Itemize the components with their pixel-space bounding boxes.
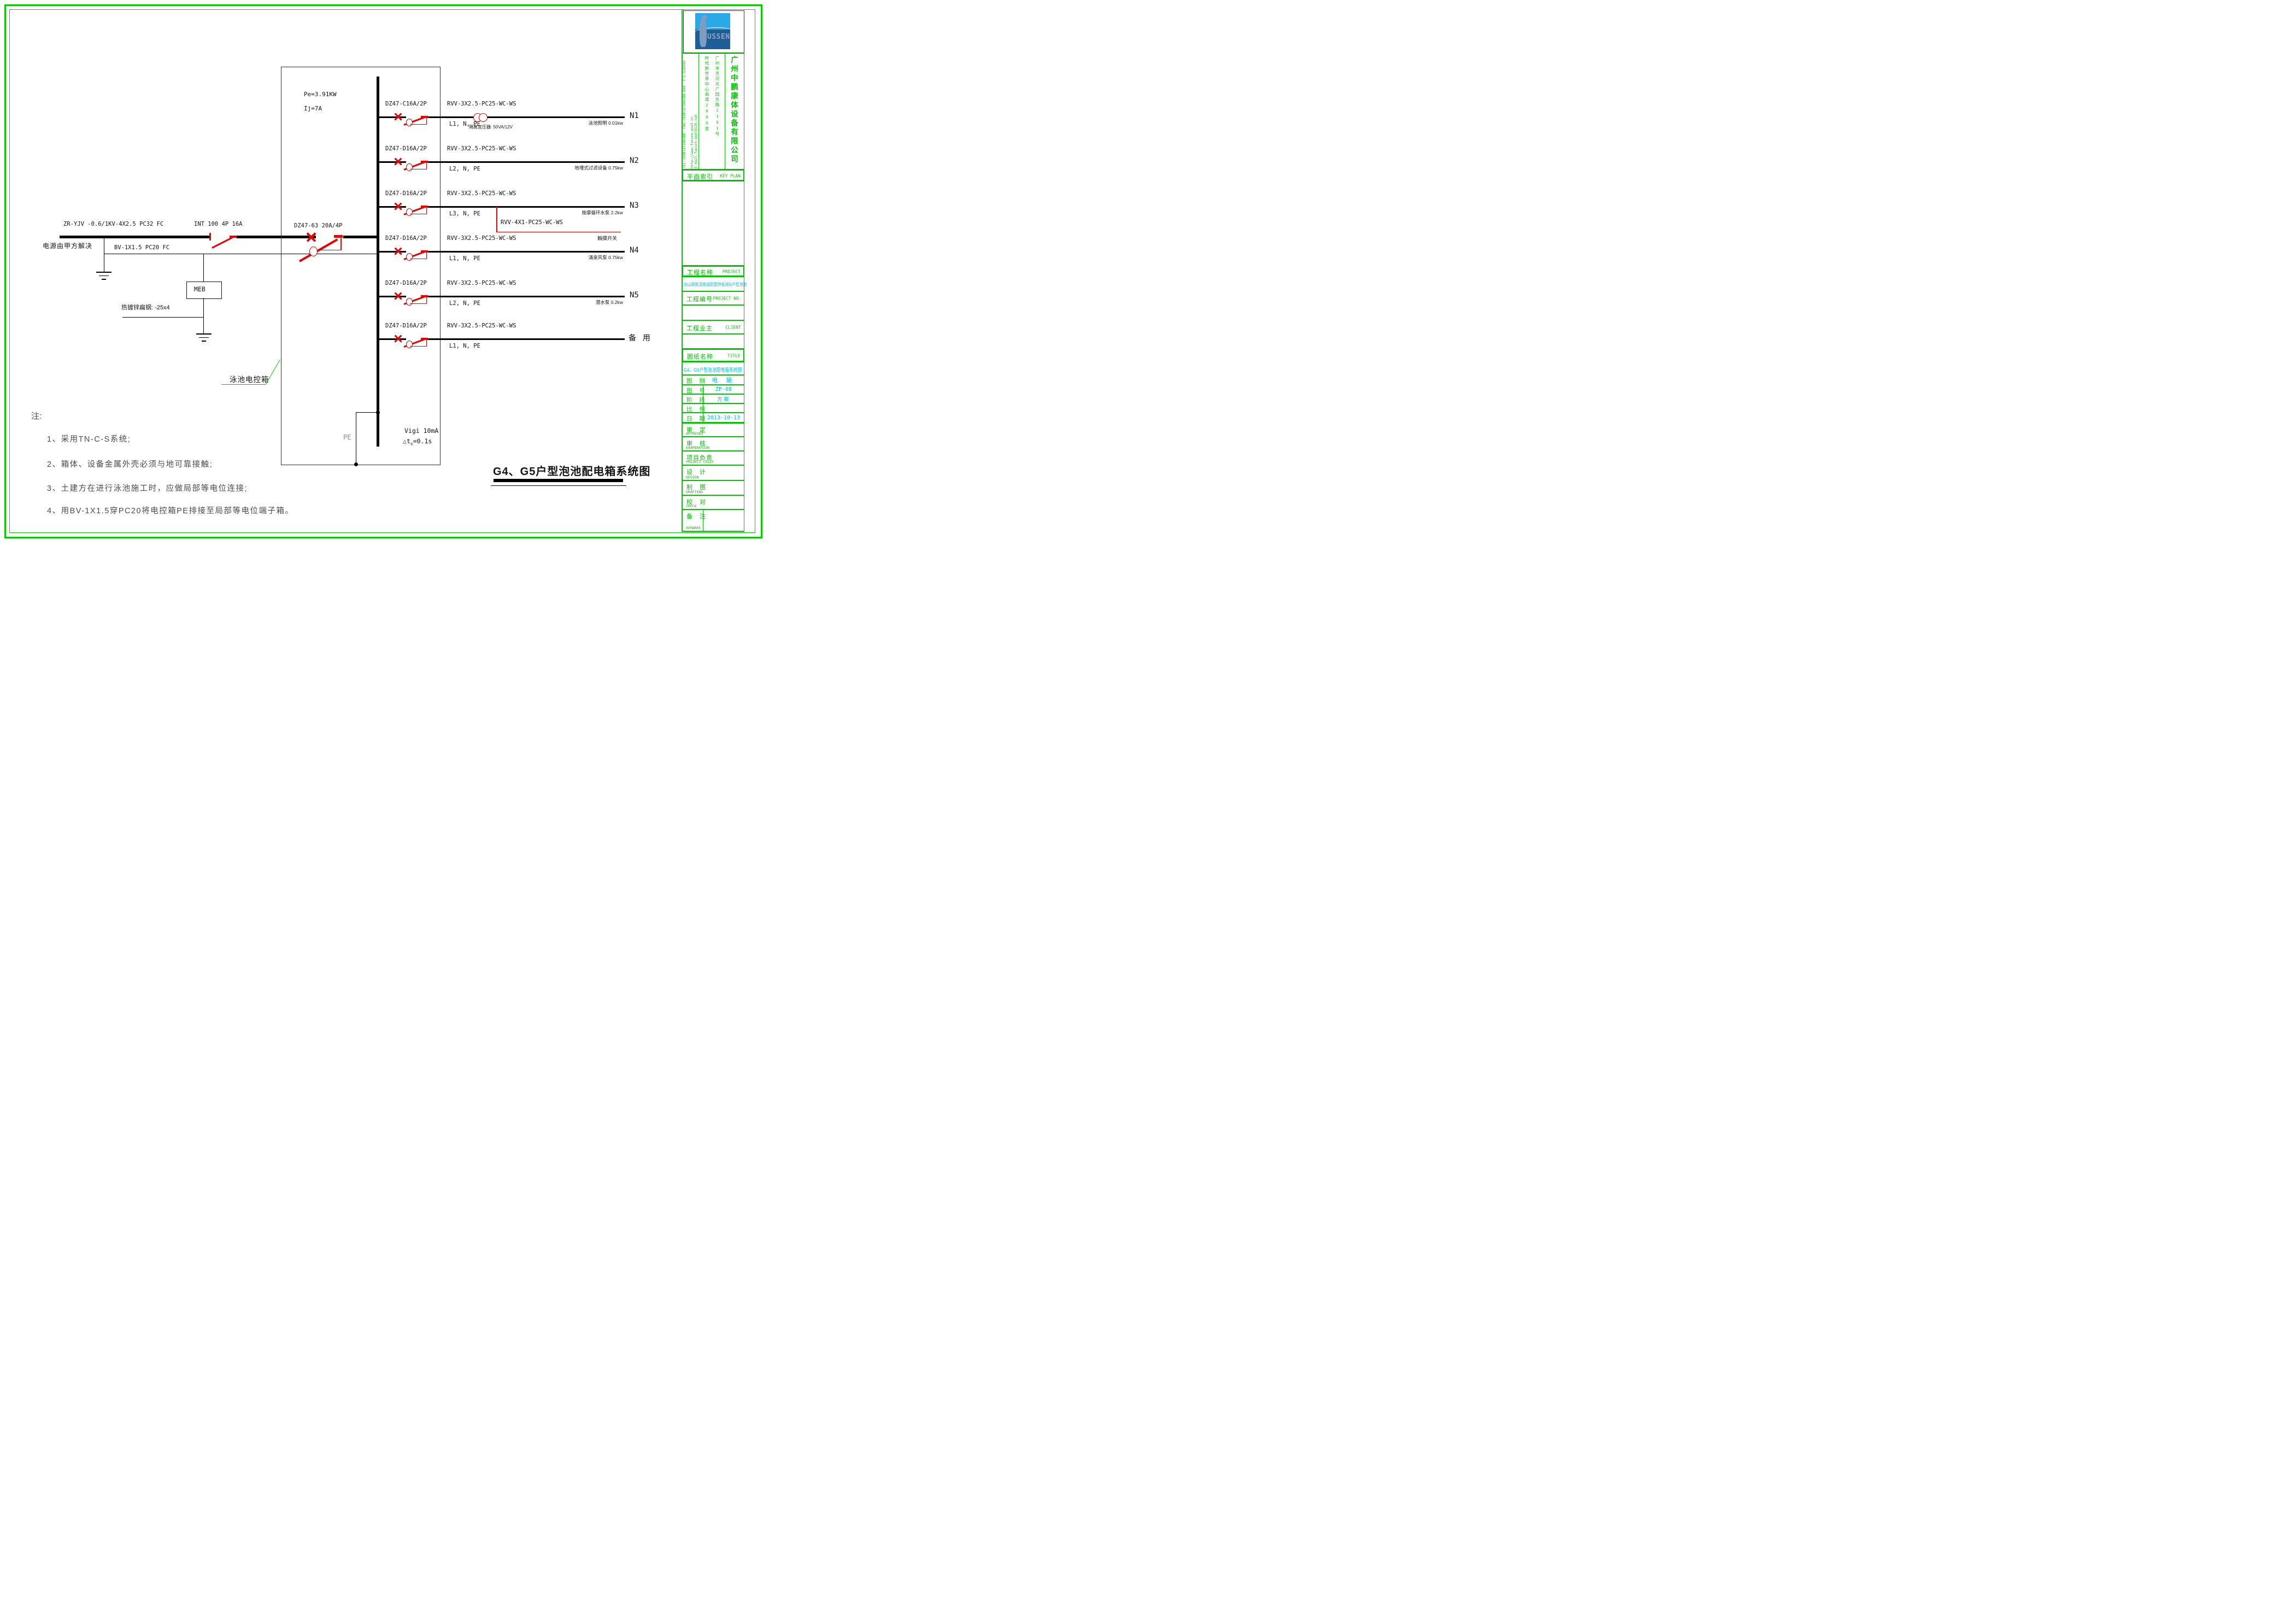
client-value-cell xyxy=(682,334,744,349)
branch-id-label: N4 xyxy=(630,246,639,255)
scale-value xyxy=(703,404,744,412)
company-web-email: Http://www.fussen-pool.cn E-mail:fussen-… xyxy=(690,54,698,168)
pe-link-h xyxy=(356,412,378,413)
number-row: 图 号 ZP-08 xyxy=(682,385,744,394)
branch-cable-label: RVV-3X2.5-PC25-WC-WS xyxy=(447,101,516,107)
breaker-icon xyxy=(390,151,432,173)
projectno-label-en: PROJECT NO. xyxy=(713,296,741,301)
panel-leader-underline xyxy=(221,384,266,385)
breaker-icon xyxy=(390,329,432,350)
branch-id-label: N3 xyxy=(630,201,639,210)
branch-cable-label: RVV-3X2.5-PC25-WC-WS xyxy=(447,280,516,286)
breaker-icon xyxy=(390,107,432,128)
projectno-value-cell xyxy=(682,305,744,320)
branch-load-label: 按摩循环水泵 2.2kw xyxy=(582,209,623,216)
drawing-sheet: ZR-YJV -0.6/1KV-4X2.5 PC32 FC INT 100 4P… xyxy=(0,0,765,541)
remarks-label-en: REMARKS xyxy=(686,526,701,530)
tap-cable-label: RVV-4X1-PC25-WC-WS xyxy=(501,219,563,226)
branch-cable-label: RVV-3X2.5-PC25-WC-WS xyxy=(447,145,516,152)
stage-row: 阶 段 方案 xyxy=(682,394,744,403)
note-item: 3、土建方在进行泳池施工时，应做局部等电位连接; xyxy=(47,482,248,494)
chief-row: 项目负责 PROJECT CHIEF xyxy=(682,451,744,465)
category-value: 电 施 xyxy=(703,376,744,384)
breaker-icon xyxy=(390,286,432,308)
title-underline-thin xyxy=(491,485,626,486)
branch-breaker-label: DZ47-D16A/2P xyxy=(385,235,427,242)
note-item: 1、采用TN-C-S系统; xyxy=(47,433,131,444)
projectno-header: 工程编号 PROJECT NO. xyxy=(682,291,744,305)
tap-line-h xyxy=(496,232,621,233)
project-label: 工程名称 xyxy=(687,268,713,277)
keyplan-box xyxy=(682,181,744,266)
pe-junction-dot xyxy=(376,411,380,414)
remarks-label: 备 注 xyxy=(686,512,708,520)
branch-phase-label: L1, N, PE xyxy=(449,255,480,262)
drawing-title: G4、G5户型泡池配电箱系统图 xyxy=(493,462,650,478)
transformer-icon xyxy=(479,113,488,122)
branch-phase-label: L2, N, PE xyxy=(449,166,480,172)
branch-phase-label: L1, N, PE xyxy=(449,343,480,349)
branch-phase-label: L2, N, PE xyxy=(449,300,480,307)
client-header: 工程业主 CLIENT xyxy=(682,320,744,334)
logo-figure-head-icon xyxy=(702,15,707,20)
project-header: 工程名称 PROJECT xyxy=(682,266,744,277)
project-value: 台山颐和温泉城别墅样板房G户型泡池 xyxy=(684,282,747,288)
date-row: 日 期 2013-10-13 xyxy=(682,413,744,423)
company-tel-fax: TEL:(020)87244208 FAX:(020)87244208-608 … xyxy=(683,54,686,168)
examination-label-en: EXAMINATION xyxy=(686,445,709,450)
keyplan-header: 平面索引 KEY PLAN xyxy=(682,169,744,181)
keyplan-label-en: KEY PLAN xyxy=(720,174,741,179)
branch-breaker-label: DZ47-D16A/2P xyxy=(385,323,427,329)
delta-icon: △ xyxy=(403,437,407,445)
check-row: 校 对 CHECK xyxy=(682,495,744,509)
design-row: 设 计 DESIGN xyxy=(682,465,744,480)
breaker-icon xyxy=(390,241,432,263)
drafting-label-en: DRAFTING xyxy=(686,490,703,494)
client-label: 工程业主 xyxy=(686,324,713,332)
branch-cable-label: RVV-3X2.5-PC25-WC-WS xyxy=(447,323,516,329)
pe-link-v xyxy=(356,412,356,464)
sheet-label: 图纸名称 xyxy=(687,352,713,361)
company-logo: USSEN xyxy=(695,13,730,49)
company-tel: TEL:(020)87244208 xyxy=(683,133,686,168)
branch-breaker-label: DZ47-C16A/2P xyxy=(385,101,427,107)
client-label-en: CLIENT xyxy=(726,325,741,330)
branch-row: DZ47-D16A/2P RVV-3X2.5-PC25-WC-WS L1, N,… xyxy=(0,323,765,383)
number-value: ZP-08 xyxy=(703,385,744,394)
sheet-value-cell: G4、G5户型泡池配电箱系统图 xyxy=(682,362,744,375)
row-divider xyxy=(703,510,703,531)
company-divider xyxy=(698,52,699,169)
branch-id-label: N5 xyxy=(630,291,639,300)
branch-id-label: N1 xyxy=(630,112,639,120)
tap-line-v xyxy=(496,207,497,232)
date-value: 2013-10-13 xyxy=(703,413,744,422)
branch-id-label: 备 用 xyxy=(629,332,653,343)
vigi-trip-label: △ts=0.1s xyxy=(403,437,432,446)
company-name: 广州中鹏康体设备有限公司 xyxy=(728,56,739,167)
title-underline-thick xyxy=(494,479,623,482)
notes-head: 注: xyxy=(31,410,42,421)
branch-id-label: N2 xyxy=(630,156,639,165)
sheet-value: G4、G5户型泡池配电箱系统图 xyxy=(684,366,742,373)
scale-row: 比 例 xyxy=(682,403,744,413)
branch-load-label: 涌泉风泵 0.75kw xyxy=(589,254,623,261)
project-label-en: PROJECT xyxy=(723,269,741,274)
note-item: 4、用BV-1X1.5穿PC20将电控箱PE排接至局部等电位端子箱。 xyxy=(47,505,293,516)
branch-load-label: 潜水泵 0.2kw xyxy=(596,299,623,306)
keyplan-label: 平面索引 xyxy=(687,172,713,181)
sheet-header: 图纸名称 TITLE xyxy=(682,349,744,362)
company-address-1: 广州市天河北广园东路2191号 xyxy=(714,56,720,167)
examination-row: 审 核 EXAMINATION xyxy=(682,437,744,451)
note-item: 2、箱体、设备金属外壳必须与地可靠接触; xyxy=(47,458,213,470)
branch-load-label: 地埋式过滤设备 0.75kw xyxy=(574,165,623,171)
drafting-row: 制 图 DRAFTING xyxy=(682,480,744,495)
branch-breaker-label: DZ47-D16A/2P xyxy=(385,190,427,197)
branch-cable-label: RVV-3X2.5-PC25-WC-WS xyxy=(447,190,516,197)
stage-value: 方案 xyxy=(703,395,744,403)
sheet-label-en: TITLE xyxy=(727,354,741,359)
branch-breaker-label: DZ47-D16A/2P xyxy=(385,145,427,152)
projectno-label: 工程编号 xyxy=(686,295,713,303)
category-row: 图 别 电 施 xyxy=(682,375,744,385)
logo-wordmark: USSEN xyxy=(707,33,730,41)
branch-breaker-label: DZ47-D16A/2P xyxy=(385,280,427,286)
company-divider xyxy=(725,52,725,169)
branch-phase-label: L3, N, PE xyxy=(449,210,480,217)
pe-bar-label: PE xyxy=(343,433,351,441)
company-postcode: P.C:510500 xyxy=(683,61,686,81)
vigi-label: Vigi 10mA xyxy=(404,427,438,435)
remarks-row: 备 注 REMARKS xyxy=(682,509,744,532)
approved-row: 审 定 APPROVED xyxy=(682,423,744,437)
branch-load-label: 泳池照明 0.01kw xyxy=(589,120,623,126)
project-value-cell: 台山颐和温泉城别墅样板房G户型泡池 xyxy=(682,277,744,291)
company-address-2: 时代新世界中心南塔2885室 xyxy=(704,56,710,167)
design-label-en: DESIGN xyxy=(686,475,698,479)
company-website: Http://www.fussen-pool.cn xyxy=(690,116,694,168)
chief-label-en: PROJECT CHIEF xyxy=(686,460,714,464)
approved-label-en: APPROVED xyxy=(686,431,703,436)
company-email: E-mail:fussen-pool@126.com xyxy=(694,114,698,168)
pe-bottom-dot xyxy=(354,462,358,466)
branch-cable-label: RVV-3X2.5-PC25-WC-WS xyxy=(447,235,516,242)
panel-power-label: Pe=3.91KW xyxy=(304,91,337,98)
company-fax: FAX:(020)87244208-608 xyxy=(683,85,686,129)
transformer-label: 隔离变压器: 50VA/12V xyxy=(469,124,513,130)
check-label-en: CHECK xyxy=(686,504,697,508)
breaker-icon xyxy=(390,196,432,218)
